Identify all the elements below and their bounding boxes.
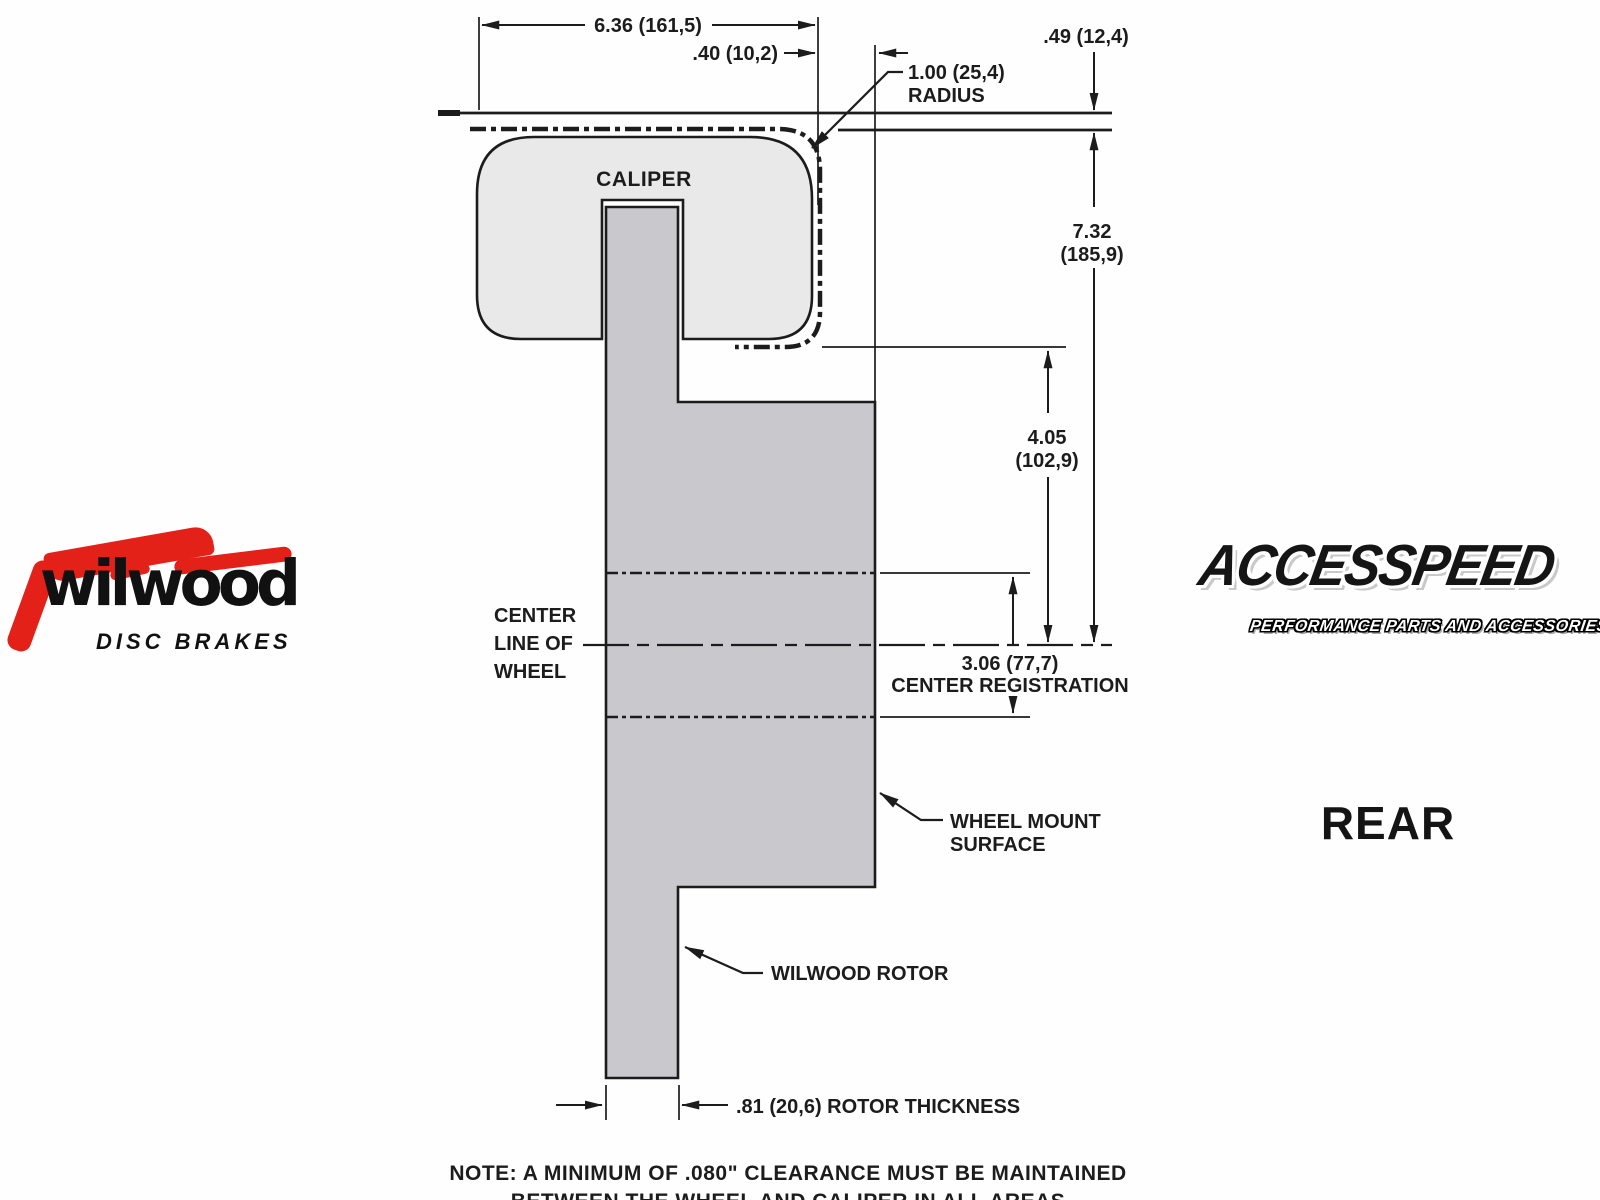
dim-wheel-gap-text: .49 (12,4)	[1043, 26, 1129, 48]
center-registration-value: 3.06 (77,7)	[962, 653, 1059, 675]
rotor-thickness-label: .81 (20,6) ROTOR THICKNESS	[736, 1096, 1020, 1118]
dim-total-height-value: 7.32	[1073, 221, 1112, 243]
accesspeed-tagline: PERFORMANCE PARTS AND ACCESSORIES	[1249, 618, 1600, 636]
radius-value-text: 1.00 (25,4)	[908, 62, 1005, 84]
rotor-leader	[685, 947, 763, 973]
dim-caliper-width-text: 6.36 (161,5)	[594, 15, 702, 37]
dim-mount-height-value: 4.05	[1028, 427, 1067, 449]
wheel-mount-label-1: WHEEL MOUNT	[950, 811, 1101, 833]
center-registration-label: CENTER REGISTRATION	[891, 675, 1128, 697]
centerline-label-3: WHEEL	[494, 661, 566, 683]
accesspeed-logo: ACCESSPEED PERFORMANCE PARTS AND ACCESSO…	[1198, 532, 1593, 657]
centerline-label-1: CENTER	[494, 605, 577, 627]
wheel-mount-leader	[880, 793, 943, 820]
wheel-mount-label-2: SURFACE	[950, 834, 1046, 856]
centerline-label-2: LINE OF	[494, 633, 573, 655]
dim-mount-height-mm: (102,9)	[1015, 450, 1078, 472]
technical-drawing-page: CALIPER 6.36 (161,5) .40 (10,2) .49 (12,…	[0, 0, 1600, 1200]
wilwood-wordmark: wilwood	[14, 547, 322, 620]
rear-position-label: REAR	[1298, 796, 1478, 850]
wilwood-disc-brakes-label: DISC BRAKES	[96, 629, 292, 655]
dim-total-height-mm: (185,9)	[1060, 244, 1123, 266]
note-line-2: BETWEEN THE WHEEL AND CALIPER IN ALL ARE…	[511, 1190, 1066, 1200]
caliper-label: CALIPER	[596, 168, 692, 191]
dim-caliper-offset-text: .40 (10,2)	[692, 43, 778, 65]
wilwood-logo: wilwood DISC BRAKES	[14, 533, 322, 665]
rotor-leader-label: WILWOOD ROTOR	[771, 963, 949, 985]
radius-word-text: RADIUS	[908, 85, 985, 107]
accesspeed-wordmark: ACCESSPEED	[1194, 532, 1559, 599]
radius-leader	[812, 72, 903, 148]
note-line-1: NOTE: A MINIMUM OF .080" CLEARANCE MUST …	[449, 1162, 1126, 1185]
